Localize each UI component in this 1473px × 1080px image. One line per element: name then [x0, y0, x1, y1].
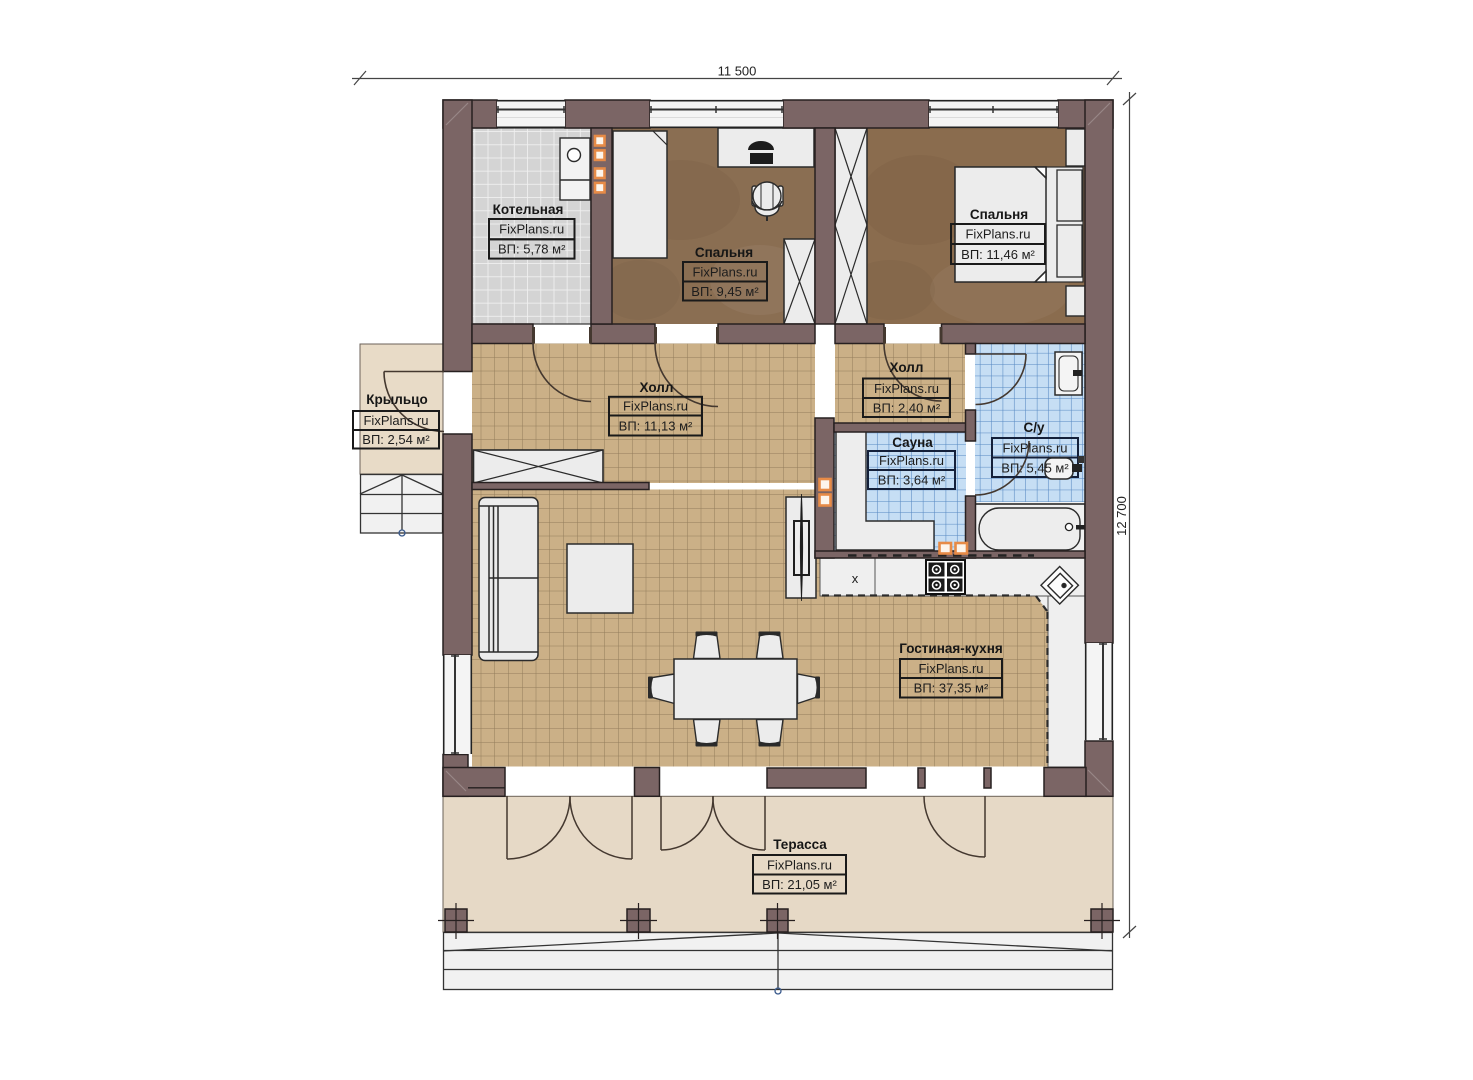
svg-text:ВП: 5,78 м²: ВП: 5,78 м²: [498, 242, 566, 257]
svg-text:FixPlans.ru: FixPlans.ru: [918, 661, 983, 676]
svg-text:ВП: 2,54 м²: ВП: 2,54 м²: [362, 432, 430, 447]
svg-text:Спальня: Спальня: [970, 207, 1028, 222]
svg-text:Котельная: Котельная: [493, 202, 564, 217]
svg-text:С/у: С/у: [1023, 420, 1045, 435]
svg-text:ВП: 11,46 м²: ВП: 11,46 м²: [961, 247, 1035, 262]
svg-text:ВП: 5,45 м²: ВП: 5,45 м²: [1001, 461, 1069, 476]
svg-text:ВП: 11,13 м²: ВП: 11,13 м²: [619, 419, 693, 434]
svg-text:x: x: [852, 571, 859, 586]
svg-text:11 500: 11 500: [718, 64, 757, 79]
svg-text:FixPlans.ru: FixPlans.ru: [363, 413, 428, 428]
svg-text:FixPlans.ru: FixPlans.ru: [1002, 441, 1067, 456]
svg-text:Холл: Холл: [890, 360, 924, 375]
svg-text:FixPlans.ru: FixPlans.ru: [874, 381, 939, 396]
svg-text:FixPlans.ru: FixPlans.ru: [499, 222, 564, 237]
svg-text:Сауна: Сауна: [892, 435, 933, 450]
svg-text:Крыльцо: Крыльцо: [366, 392, 427, 407]
svg-text:Спальня: Спальня: [695, 245, 753, 260]
svg-text:FixPlans.ru: FixPlans.ru: [692, 265, 757, 280]
svg-text:FixPlans.ru: FixPlans.ru: [965, 227, 1030, 242]
svg-text:FixPlans.ru: FixPlans.ru: [623, 399, 688, 414]
svg-text:ВП: 3,64 м²: ВП: 3,64 м²: [878, 473, 946, 488]
svg-text:FixPlans.ru: FixPlans.ru: [767, 858, 832, 873]
svg-text:ВП: 37,35 м²: ВП: 37,35 м²: [914, 681, 989, 696]
svg-text:Гостиная-кухня: Гостиная-кухня: [899, 641, 1002, 656]
svg-text:Терасса: Терасса: [773, 837, 827, 852]
svg-text:12 700: 12 700: [1114, 496, 1129, 536]
svg-text:Холл: Холл: [640, 380, 674, 395]
svg-text:ВП: 2,40 м²: ВП: 2,40 м²: [873, 401, 941, 416]
svg-text:ВП: 21,05 м²: ВП: 21,05 м²: [762, 877, 837, 892]
svg-text:FixPlans.ru: FixPlans.ru: [879, 453, 944, 468]
svg-text:ВП: 9,45 м²: ВП: 9,45 м²: [691, 284, 759, 299]
